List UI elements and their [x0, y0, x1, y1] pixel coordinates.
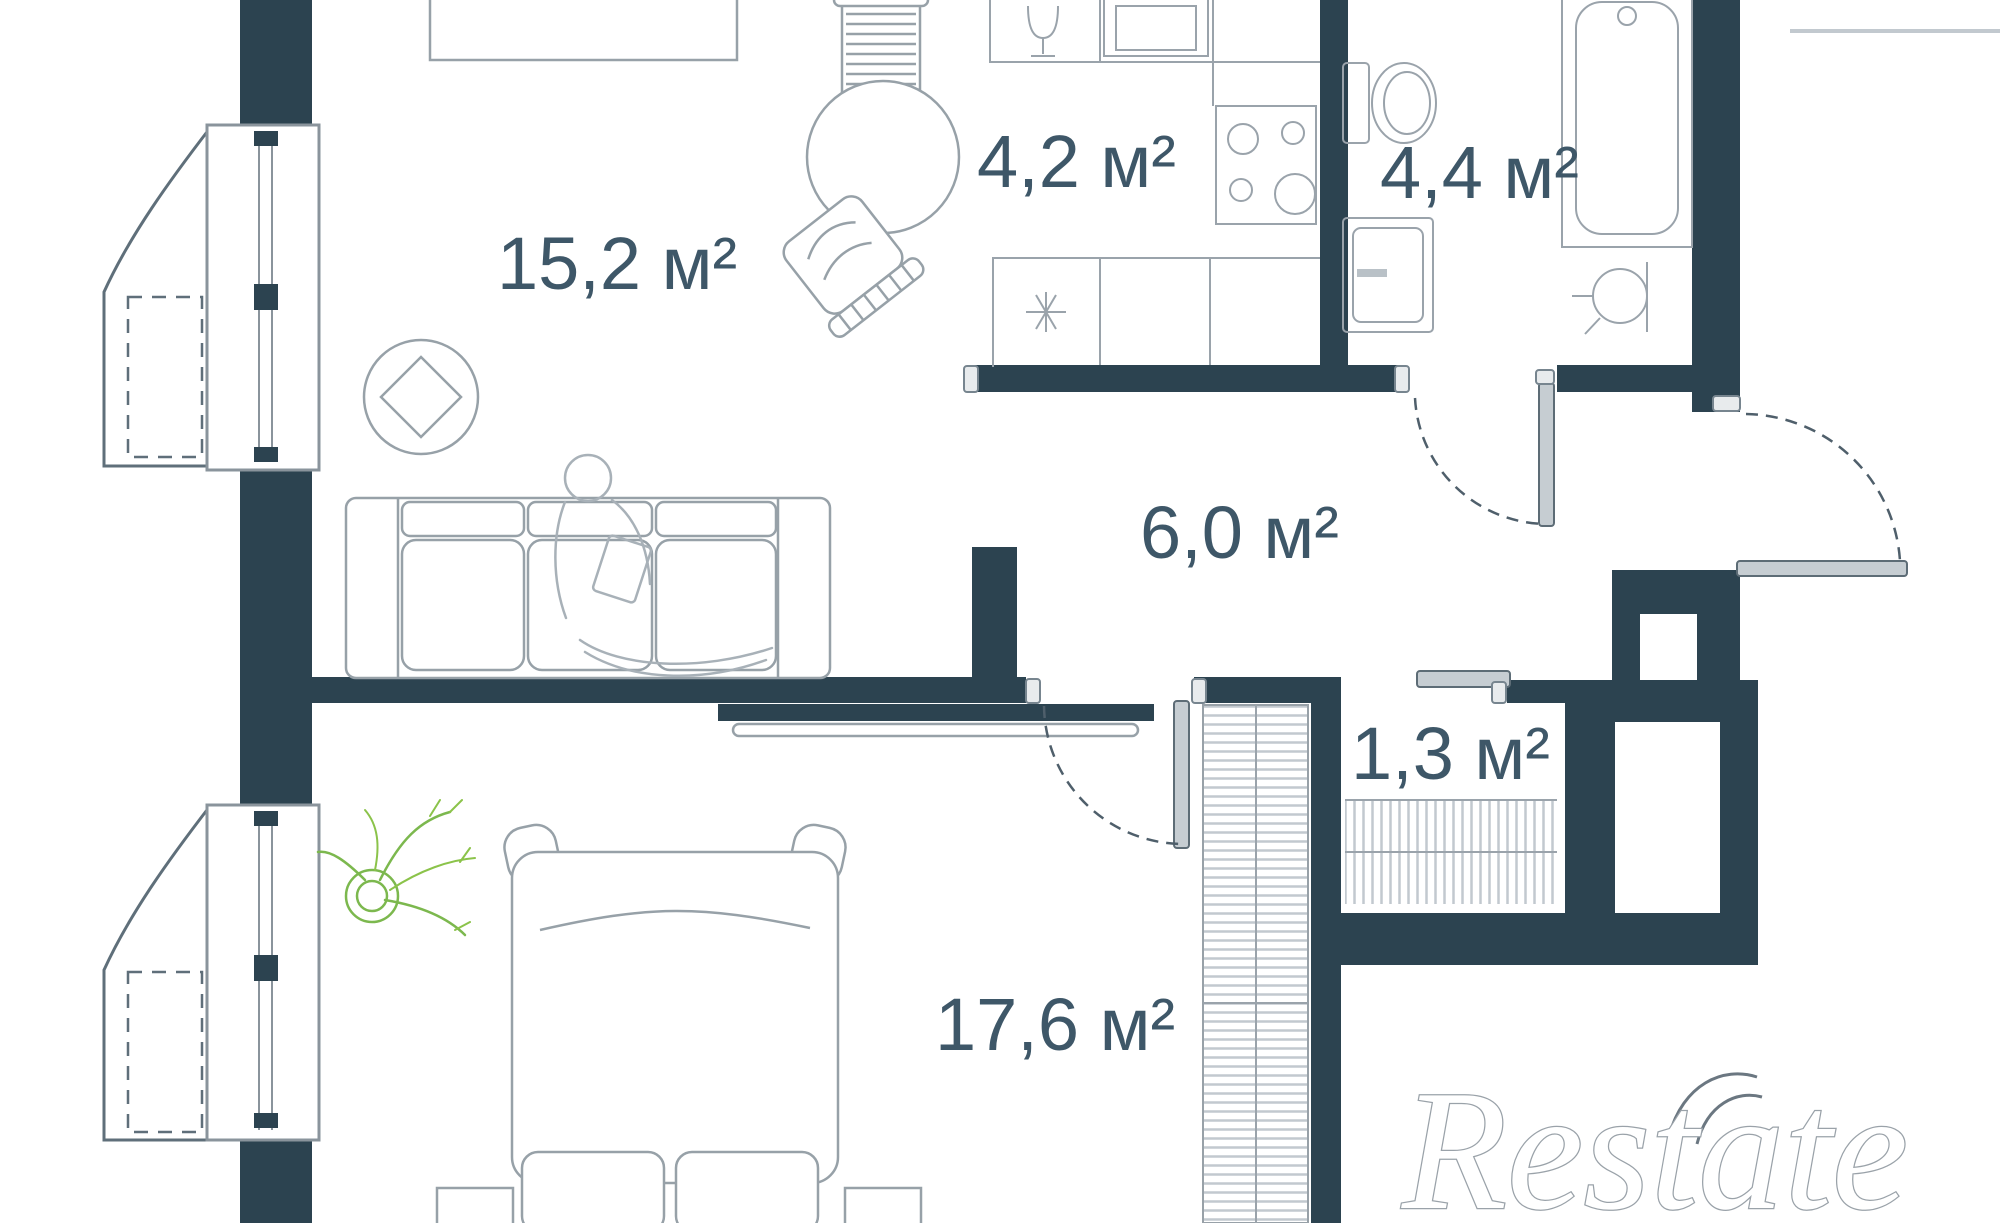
- wall-hall-stub: [972, 547, 1017, 681]
- wardrobe: [1203, 705, 1308, 1223]
- bed: [501, 821, 850, 1223]
- wall-niche-right: [1697, 614, 1740, 680]
- pillow: [676, 1152, 818, 1223]
- wall-left-bottom: [240, 1138, 312, 1223]
- pillow: [522, 1152, 664, 1223]
- rug: [364, 340, 478, 454]
- washbasin: [1572, 262, 1647, 334]
- wall-kitchen-bath: [1320, 0, 1348, 392]
- nightstand-right: [845, 1188, 921, 1223]
- wall-closet-right: [1565, 680, 1615, 913]
- wall-left-mid: [240, 468, 312, 806]
- wall-room-divider: [312, 677, 1026, 703]
- kitchen-sink: [1104, 0, 1208, 56]
- room-label-hallway: 6,0 м²: [1140, 491, 1339, 574]
- room-label-closet: 1,3 м²: [1351, 712, 1550, 795]
- room-label-kitchen: 4,2 м²: [977, 120, 1176, 203]
- door-leaf: [1174, 701, 1189, 848]
- closet-rail: [1345, 800, 1557, 904]
- fridge-icon: [1026, 292, 1066, 332]
- wall-bath-bottom-right: [1557, 365, 1692, 392]
- door-leaf: [1539, 383, 1554, 526]
- stove: [1216, 106, 1316, 224]
- room-label-bedroom: 17,6 м²: [935, 983, 1175, 1066]
- wall-wardrobe-top: [1194, 677, 1317, 703]
- room-label-living: 15,2 м²: [497, 222, 737, 305]
- floor-plan: 15,2 м² 4,2 м² 4,4 м² 6,0 м² 1,3 м² 17,6…: [0, 0, 2000, 1223]
- wall-niche-left: [1612, 614, 1640, 680]
- door-leaf: [1737, 561, 1907, 576]
- bathtub: [1562, 0, 1692, 247]
- vent-shaft: [1615, 722, 1720, 913]
- window-upper: [207, 125, 319, 470]
- glass-icon: [1028, 6, 1058, 56]
- watermark-text: Restate: [1401, 1056, 1908, 1223]
- wall-left-top: [240, 0, 312, 130]
- wall-closet-topbar: [1507, 680, 1565, 703]
- balcony-upper: [104, 128, 210, 466]
- wall-right-outer: [1692, 0, 1740, 412]
- room-label-bathroom: 4,4 м²: [1380, 131, 1579, 214]
- watermark: Restate: [1401, 1056, 1908, 1223]
- wall-closet-bottom: [1311, 913, 1758, 965]
- floor-plan-canvas: 15,2 м² 4,2 м² 4,4 м² 6,0 м² 1,3 м² 17,6…: [0, 0, 2000, 1223]
- wall-niche-top: [1612, 570, 1740, 614]
- wall-shaft-right: [1720, 680, 1758, 913]
- nightstand-left: [437, 1188, 513, 1223]
- plant: [318, 800, 475, 935]
- door-bathroom: [1415, 383, 1554, 526]
- desk: [430, 0, 737, 60]
- washing-machine: [1343, 218, 1433, 332]
- sofa: [346, 498, 830, 678]
- tv: [718, 704, 1154, 736]
- balcony-lower: [104, 806, 210, 1140]
- window-lower: [207, 805, 319, 1140]
- door-entrance: [1737, 414, 1907, 576]
